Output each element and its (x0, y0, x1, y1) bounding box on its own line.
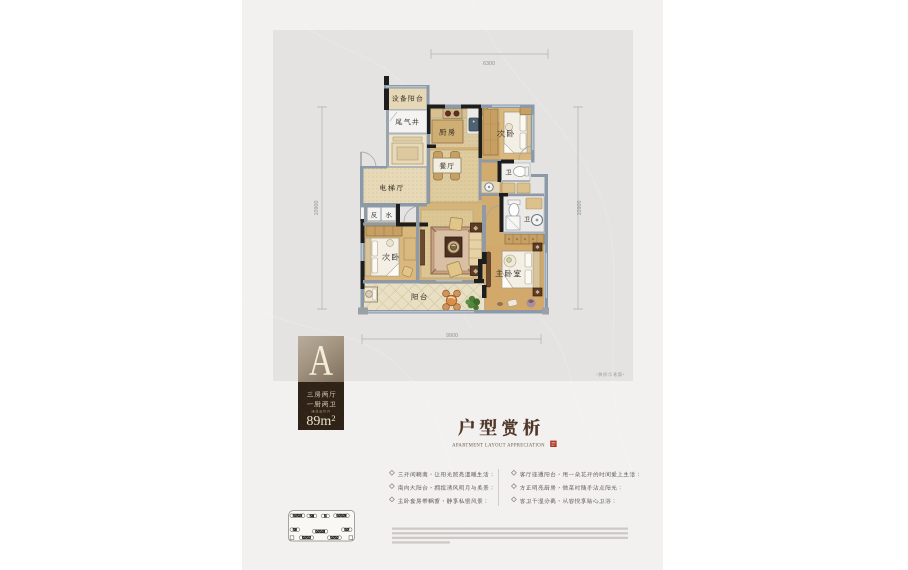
svg-text:A: A (309, 338, 333, 382)
svg-text:89m2: 89m2 (306, 413, 335, 429)
svg-text:6300: 6300 (483, 61, 495, 67)
svg-text:10900: 10900 (577, 201, 583, 216)
svg-text:10900: 10900 (314, 201, 320, 216)
svg-text:9900: 9900 (446, 333, 458, 339)
svg-text:APARTMENT LAYOUT APPRECIATION: APARTMENT LAYOUT APPRECIATION (452, 443, 545, 448)
